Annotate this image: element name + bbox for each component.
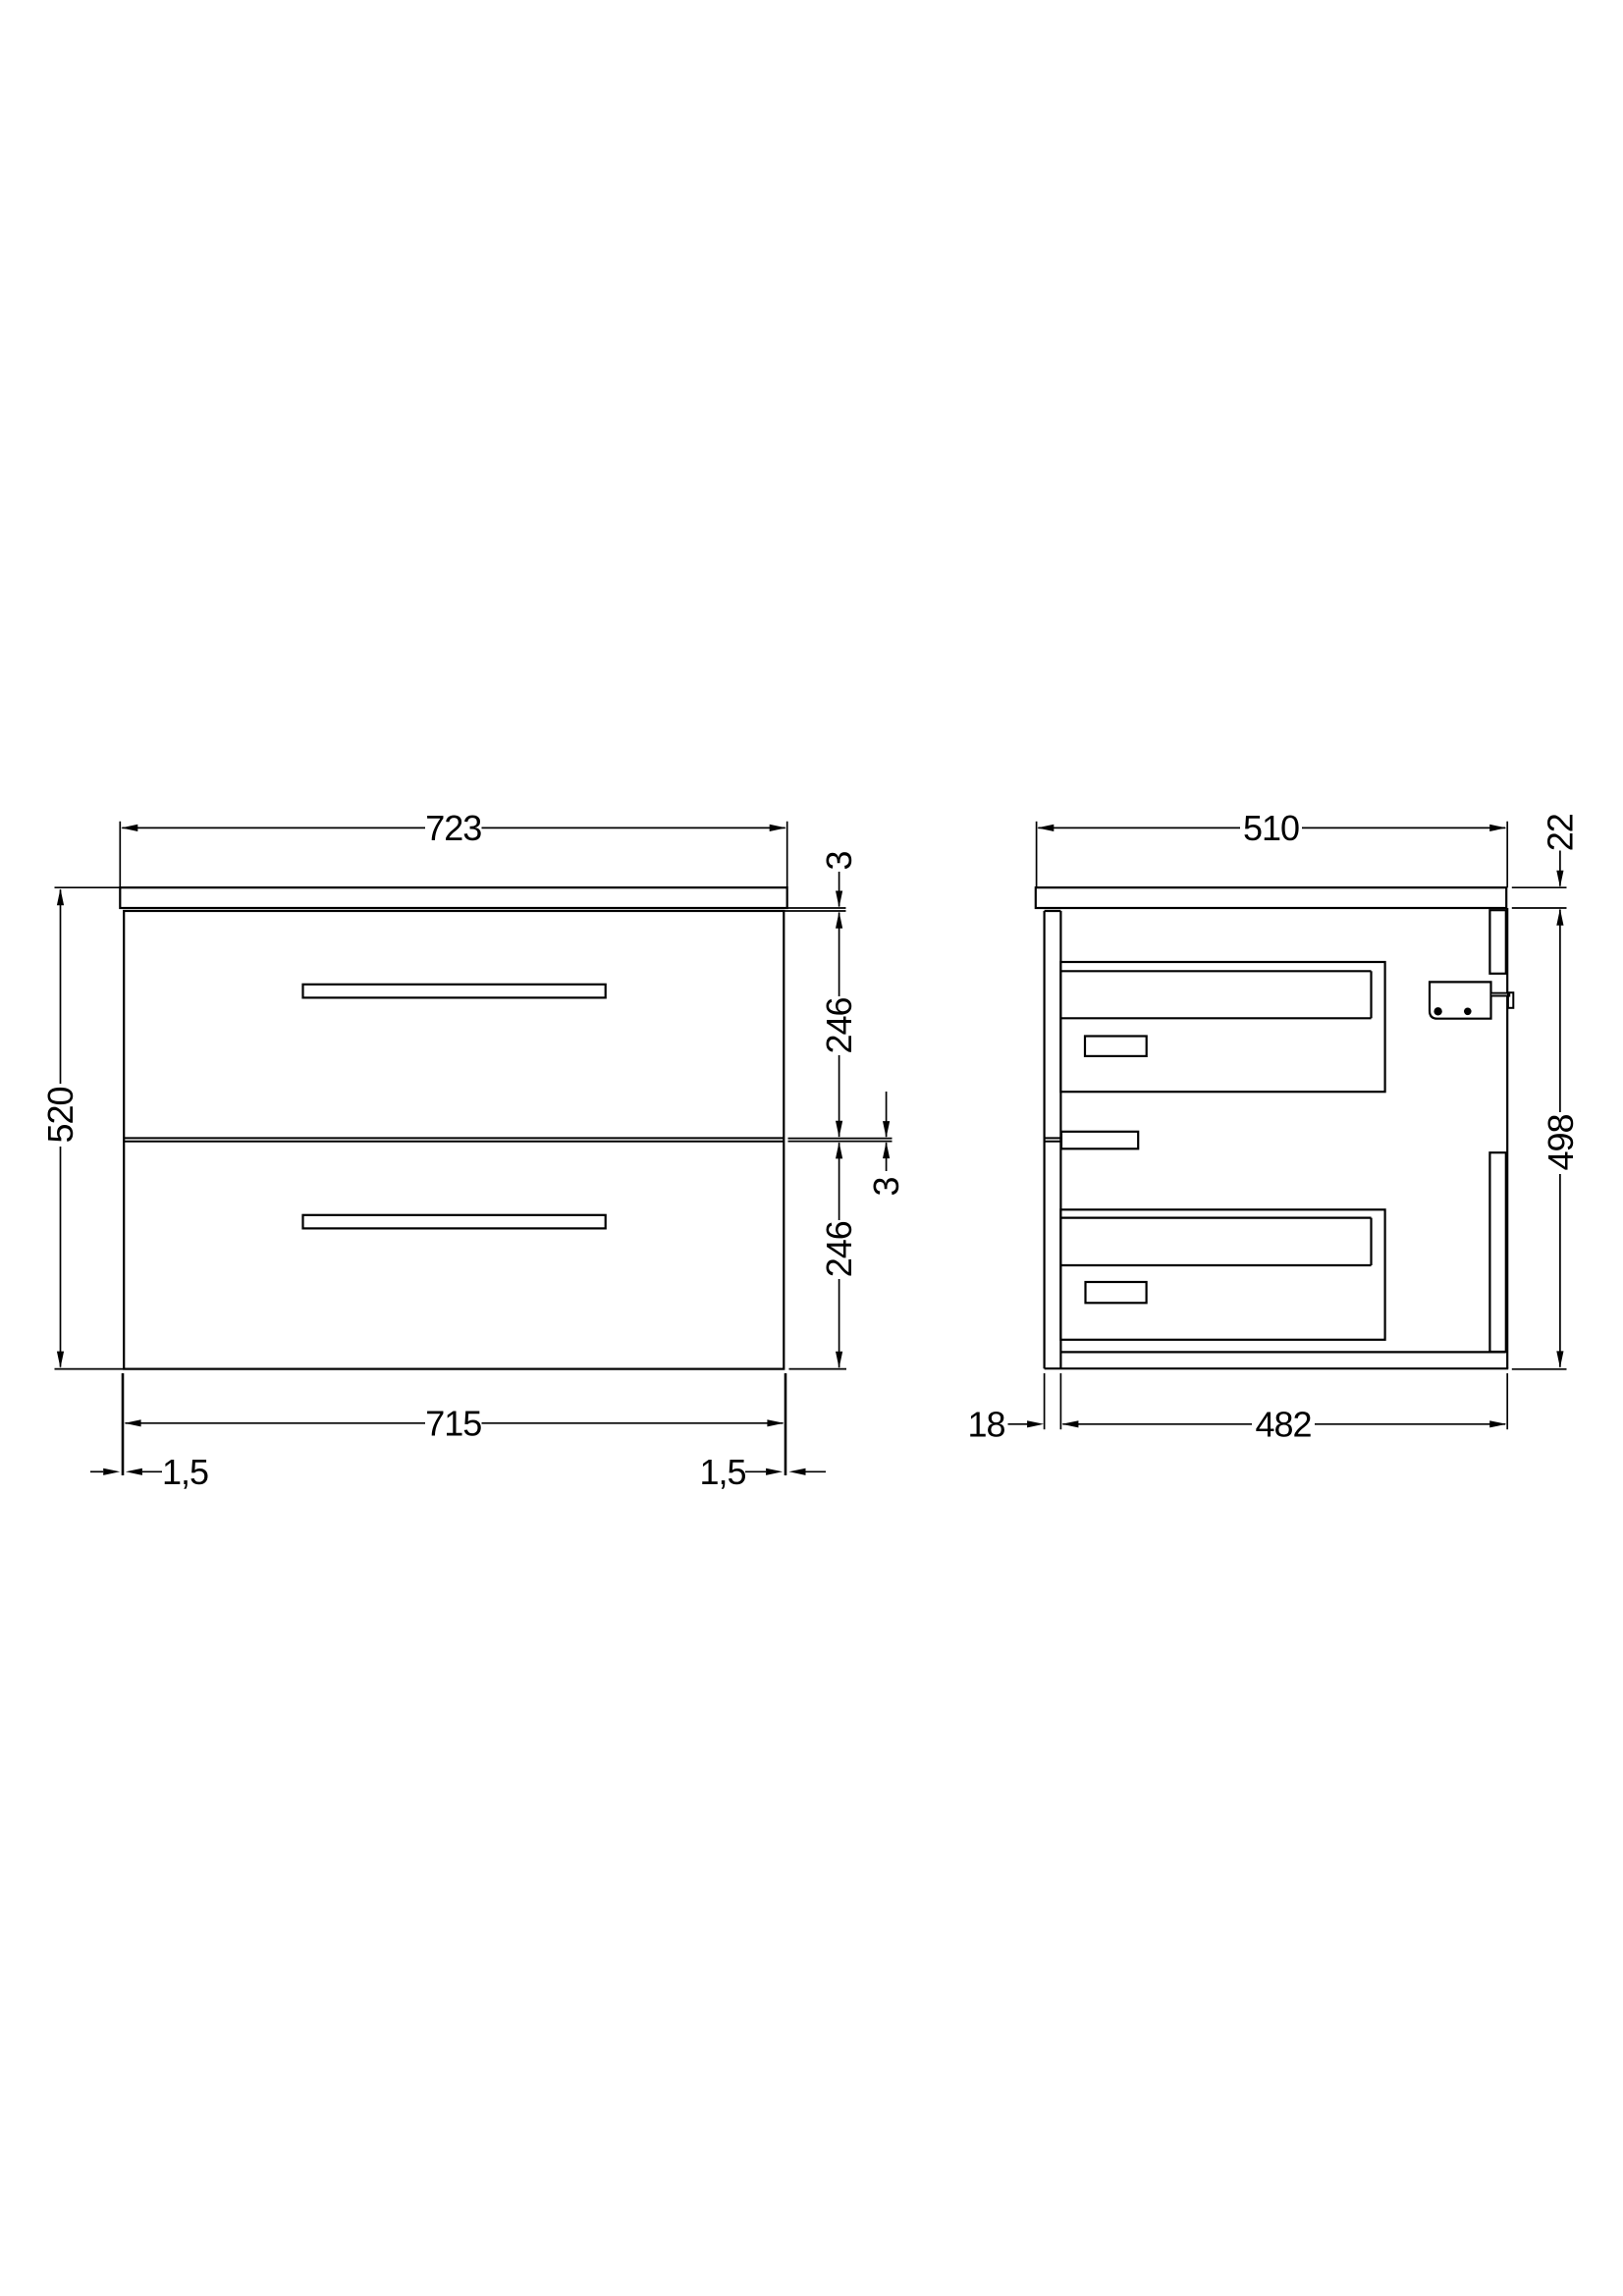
svg-text:715: 715 <box>425 1403 481 1443</box>
svg-text:482: 482 <box>1255 1404 1311 1444</box>
svg-text:1,5: 1,5 <box>162 1452 208 1492</box>
svg-text:1,5: 1,5 <box>699 1452 745 1492</box>
svg-text:22: 22 <box>1540 814 1580 851</box>
svg-text:498: 498 <box>1541 1114 1581 1170</box>
svg-text:18: 18 <box>967 1404 1004 1444</box>
svg-text:520: 520 <box>40 1087 81 1143</box>
svg-text:723: 723 <box>425 808 481 848</box>
svg-text:246: 246 <box>819 1221 859 1277</box>
svg-text:510: 510 <box>1243 808 1299 848</box>
svg-text:3: 3 <box>866 1177 906 1196</box>
svg-text:246: 246 <box>819 997 859 1053</box>
svg-text:3: 3 <box>819 851 859 870</box>
